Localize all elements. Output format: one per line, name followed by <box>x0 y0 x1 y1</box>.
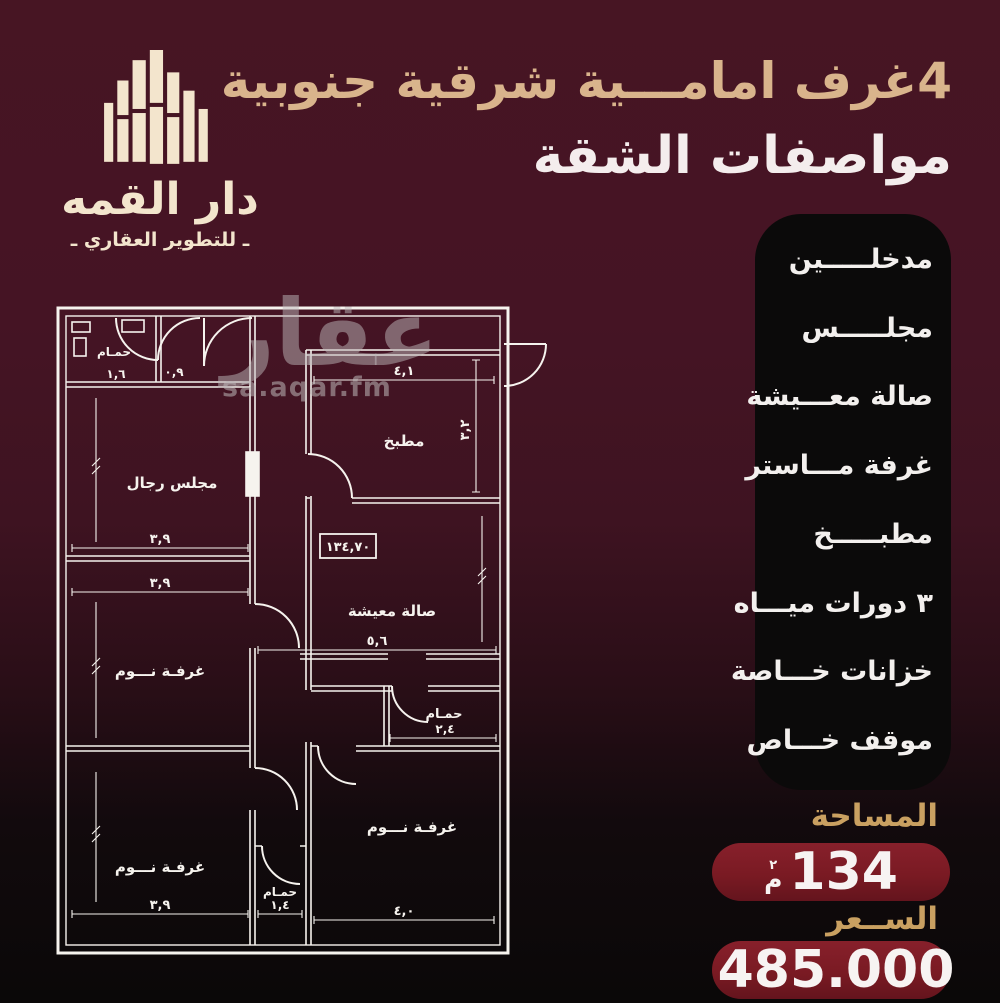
feature-bathrooms: ٣ دورات ميـــاه <box>767 588 933 619</box>
headline-line2: مواصفات الشقة <box>221 126 952 186</box>
dim-bed4-w: ٤,٠ <box>394 904 415 919</box>
room-label-bath-top-left: حمـام <box>97 345 131 360</box>
price-value: 485.000 <box>718 944 955 996</box>
features-panel: مدخلـــــين مجلـــــس صالة معـــيشة غرفة… <box>755 214 951 790</box>
dim-kitchen-w: ٤,١ <box>394 364 415 379</box>
area-box-value: ١٣٤,٧٠ <box>326 540 371 555</box>
feature-kitchen: مطبـــــخ <box>767 519 933 550</box>
dim-bath-bottom-w: ١,٤ <box>270 898 289 912</box>
interior-walls <box>66 316 500 945</box>
outer-walls <box>58 308 508 953</box>
square-meter-unit: ٢ م <box>764 861 782 890</box>
dim-kitchen-h: ٣,٢ <box>458 420 473 441</box>
area-label: المساحة <box>811 798 938 834</box>
feature-master-room: غرفة مـــاستر <box>767 450 933 481</box>
room-label-kitchen: مطبخ <box>384 432 425 450</box>
room-label-living: صالة معيشة <box>348 602 436 620</box>
feature-living-hall: صالة معـــيشة <box>767 381 933 412</box>
dimension-lines <box>72 360 496 924</box>
feature-closets: خزانات خـــاصة <box>767 656 933 687</box>
dim-bath-tl-w: ١,٦ <box>106 367 125 381</box>
price-label: الســعر <box>826 901 938 937</box>
room-label-bed-right-bottom: غرفـة نـــوم <box>367 818 457 836</box>
feature-majlis: مجلـــــس <box>767 313 933 344</box>
dim-bed3-w: ٣,٩ <box>150 898 171 913</box>
room-labels: حمـام مجلس رجال غرفـة نـــوم غرفـة نـــو… <box>97 345 463 900</box>
area-pill: ٢ م 134 <box>712 843 950 901</box>
poster-root: دار القمه ـ للتطوير العقاري ـ 4غرف امامـ… <box>0 0 1000 1003</box>
room-label-majlis: مجلس رجال <box>127 474 218 492</box>
dim-bath-mid-w: ٢,٤ <box>435 722 454 736</box>
feature-parking: موقف خـــاص <box>767 725 933 756</box>
room-label-bed-left-bottom: غرفـة نـــوم <box>115 858 205 876</box>
floor-plan: حمـام مجلس رجال غرفـة نـــوم غرفـة نـــو… <box>52 302 552 962</box>
dim-living-w: ٥,٦ <box>367 634 388 649</box>
unit-letter: م <box>764 871 782 890</box>
area-box: ١٣٤,٧٠ <box>320 534 376 558</box>
dim-bath-tl-h: ٠,٩ <box>164 365 184 379</box>
headline: 4غرف امامـــية شرقية جنوبية مواصفات الشق… <box>221 52 952 186</box>
room-label-bath-mid: حمـام <box>426 707 463 722</box>
building-logo-icon <box>104 50 216 172</box>
company-tagline: ـ للتطوير العقاري ـ <box>58 229 262 251</box>
headline-line1: 4غرف امامـــية شرقية جنوبية <box>221 52 952 110</box>
dim-majlis-w: ٣,٩ <box>150 532 171 547</box>
price-pill: 485.000 <box>712 941 950 999</box>
feature-entrances: مدخلـــــين <box>767 244 933 275</box>
room-label-bed-left-mid: غرفـة نـــوم <box>115 662 205 680</box>
dim-bed2-w: ٣,٩ <box>150 576 171 591</box>
area-value: 134 <box>789 846 898 898</box>
